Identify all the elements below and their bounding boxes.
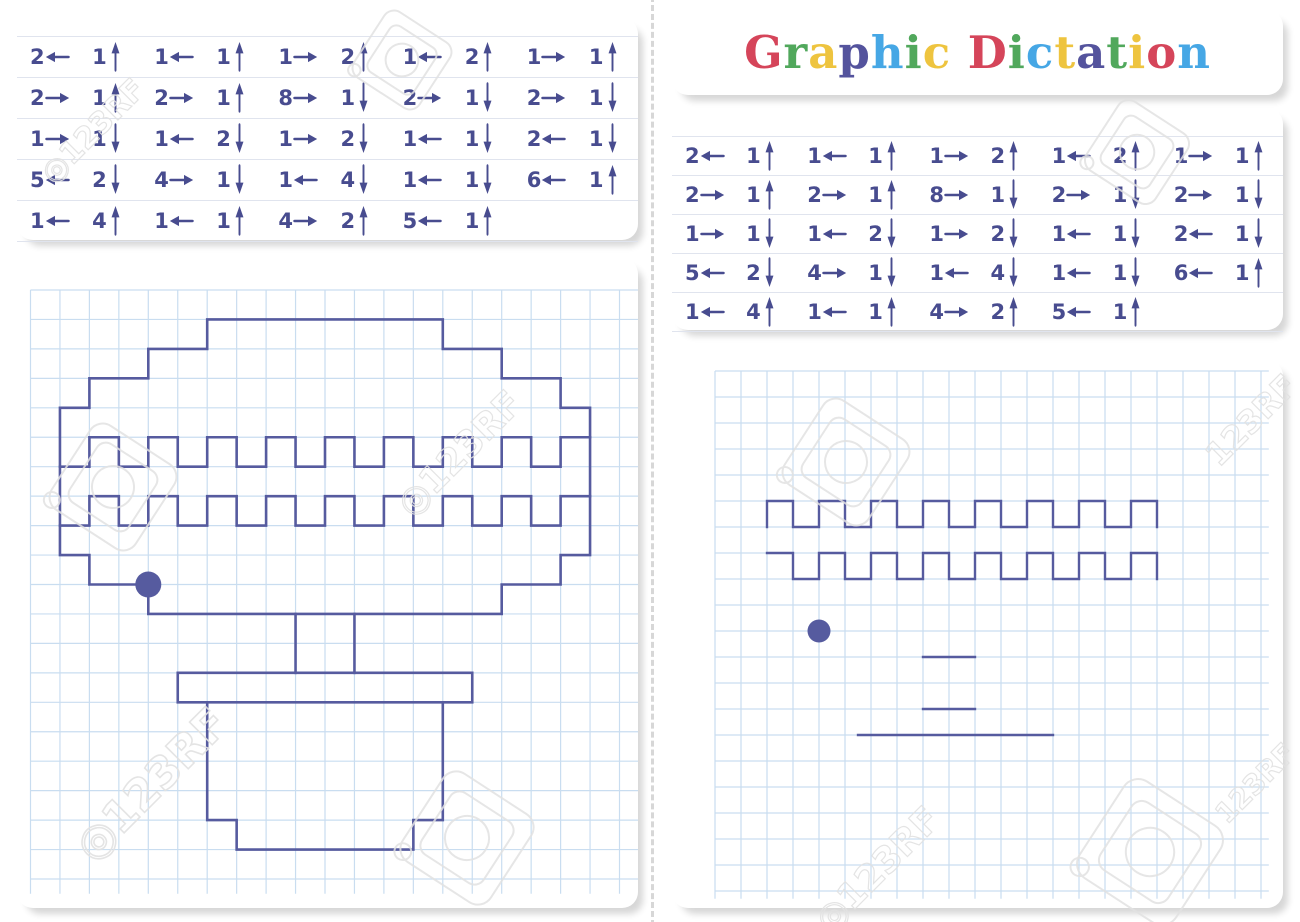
step-count: 1	[807, 146, 822, 167]
dictation-step: 1	[17, 124, 79, 154]
instruction-row: 2121812121	[17, 77, 638, 118]
arrow-right-icon	[1188, 145, 1213, 167]
step-count: 1	[929, 224, 944, 245]
title-letter: a	[808, 26, 838, 79]
arrow-left-icon	[45, 169, 70, 191]
dictation-step: 8	[916, 180, 977, 210]
step-count: 1	[278, 170, 293, 191]
arrow-down-icon	[1127, 179, 1144, 210]
dictation-step: 1	[390, 124, 452, 154]
dictation-step: 4	[141, 165, 203, 195]
dictation-step: 1	[203, 165, 265, 195]
start-dot	[808, 620, 831, 643]
step-count: 1	[1052, 146, 1067, 167]
arrow-down-icon	[604, 123, 621, 154]
step-count: 1	[868, 185, 883, 206]
step-count: 1	[1174, 146, 1189, 167]
step-count: 2	[1113, 146, 1128, 167]
step-count: 1	[1113, 302, 1128, 323]
arrow-down-icon	[479, 164, 496, 195]
arrow-down-icon	[479, 123, 496, 154]
dictation-step: 1	[916, 219, 977, 249]
dictation-step: 2	[977, 219, 1038, 249]
step-count: 8	[929, 185, 944, 206]
arrow-right-icon	[45, 128, 70, 150]
step-count: 2	[465, 47, 480, 68]
arrow-left-icon	[700, 301, 725, 323]
arrow-right-icon	[944, 145, 969, 167]
step-count: 2	[216, 129, 231, 150]
arrow-up-icon	[1005, 140, 1022, 171]
arrow-up-icon	[231, 82, 248, 113]
step-count: 1	[465, 211, 480, 232]
arrow-right-icon	[417, 87, 442, 109]
dictation-step: 4	[733, 297, 794, 327]
dictation-step: 1	[1222, 180, 1283, 210]
arrow-left-icon	[417, 210, 442, 232]
step-count: 1	[589, 129, 604, 150]
arrow-down-icon	[231, 123, 248, 154]
arrow-up-icon	[883, 179, 900, 210]
arrow-left-icon	[169, 210, 194, 232]
dictation-step: 2	[672, 180, 733, 210]
arrow-right-icon	[293, 128, 318, 150]
arrow-down-icon	[1127, 218, 1144, 249]
step-count: 6	[1174, 263, 1189, 284]
step-count: 1	[1052, 224, 1067, 245]
dictation-step: 2	[141, 83, 203, 113]
arrow-right-icon	[541, 87, 566, 109]
dictation-step: 1	[794, 141, 855, 171]
arrow-up-icon	[1127, 296, 1144, 327]
arrow-right-icon	[700, 223, 725, 245]
dictation-step: 2	[672, 141, 733, 171]
title-letter: t	[1054, 26, 1076, 79]
arrow-right-icon	[944, 301, 969, 323]
step-count: 1	[403, 129, 418, 150]
dictation-step: 2	[1039, 180, 1100, 210]
step-count: 1	[154, 129, 169, 150]
arrow-down-icon	[355, 123, 372, 154]
dictation-step: 2	[794, 180, 855, 210]
step-count: 2	[807, 185, 822, 206]
step-count: 1	[1113, 224, 1128, 245]
dictation-step: 2	[452, 42, 514, 72]
dictation-step: 1	[390, 42, 452, 72]
arrow-up-icon	[883, 296, 900, 327]
dictation-step: 1	[265, 124, 327, 154]
dictation-step: 1	[855, 297, 916, 327]
dictation-step: 1	[733, 141, 794, 171]
step-count: 1	[589, 88, 604, 109]
dictation-step: 1	[1039, 141, 1100, 171]
arrow-left-icon	[1066, 262, 1091, 284]
dictation-step: 1	[514, 42, 576, 72]
dictation-step: 2	[327, 42, 389, 72]
arrow-down-icon	[355, 82, 372, 113]
step-count: 1	[154, 47, 169, 68]
step-count: 1	[278, 47, 293, 68]
arrow-left-icon	[169, 128, 194, 150]
title-letter: G	[744, 26, 783, 79]
arrow-down-icon	[355, 164, 372, 195]
arrow-left-icon	[169, 46, 194, 68]
arrow-down-icon	[107, 123, 124, 154]
arrow-up-icon	[1250, 140, 1267, 171]
instruction-row: 1112121121	[17, 118, 638, 159]
dictation-step: 1	[1222, 258, 1283, 288]
worksheet-page: 2111121211212181212111121211215241141161…	[0, 0, 1300, 922]
instruction-row: 14114251	[672, 292, 1283, 332]
step-count: 5	[685, 263, 700, 284]
arrow-down-icon	[1127, 257, 1144, 288]
dictation-step: 1	[855, 180, 916, 210]
title-letter: t	[1106, 26, 1128, 79]
arrow-up-icon	[107, 41, 124, 72]
arrow-up-icon	[479, 205, 496, 236]
arrow-left-icon	[1066, 145, 1091, 167]
step-count: 1	[589, 47, 604, 68]
dictation-step: 1	[576, 83, 638, 113]
title-letter: p	[838, 26, 870, 79]
arrow-up-icon	[604, 41, 621, 72]
step-count: 2	[527, 129, 542, 150]
arrow-left-icon	[45, 46, 70, 68]
step-count: 2	[685, 146, 700, 167]
arrow-up-icon	[107, 82, 124, 113]
title-letter: c	[923, 26, 951, 79]
step-count: 4	[278, 211, 293, 232]
step-count: 1	[1235, 146, 1250, 167]
dictation-step: 1	[916, 141, 977, 171]
dictation-step: 2	[1161, 180, 1222, 210]
dictation-step: 1	[203, 83, 265, 113]
arrow-up-icon	[761, 179, 778, 210]
step-count: 4	[340, 170, 355, 191]
arrow-down-icon	[1005, 218, 1022, 249]
step-count: 1	[1235, 224, 1250, 245]
arrow-right-icon	[822, 262, 847, 284]
instruction-card-right: 2111121211212181212111121211215241141161…	[672, 108, 1283, 330]
graph-paper-grid	[31, 290, 639, 894]
arrow-down-icon	[761, 218, 778, 249]
step-count: 1	[807, 302, 822, 323]
step-count: 1	[929, 146, 944, 167]
dictation-step: 4	[327, 165, 389, 195]
arrow-right-icon	[1066, 184, 1091, 206]
arrow-left-icon	[541, 128, 566, 150]
title-letter: n	[1177, 26, 1211, 79]
arrow-up-icon	[1005, 296, 1022, 327]
step-count: 1	[216, 170, 231, 191]
step-count: 1	[30, 211, 45, 232]
step-count: 2	[340, 129, 355, 150]
step-count: 1	[1235, 185, 1250, 206]
arrow-up-icon	[1127, 140, 1144, 171]
step-count: 2	[30, 88, 45, 109]
arrow-left-icon	[417, 169, 442, 191]
step-count: 2	[154, 88, 169, 109]
instruction-row: 2121812121	[672, 175, 1283, 214]
title-letter: a	[1076, 26, 1106, 79]
dictation-step: 2	[855, 219, 916, 249]
step-count: 8	[278, 88, 293, 109]
dictation-step: 4	[265, 206, 327, 236]
dictation-step: 6	[514, 165, 576, 195]
title-letter: r	[784, 26, 809, 79]
dictation-step: 1	[1100, 258, 1161, 288]
arrow-up-icon	[231, 41, 248, 72]
step-count: 1	[685, 224, 700, 245]
arrow-down-icon	[883, 218, 900, 249]
title-letter: D	[968, 26, 1008, 79]
step-count: 1	[92, 47, 107, 68]
step-count: 1	[990, 185, 1005, 206]
step-count: 1	[929, 263, 944, 284]
instruction-row: 1112121121	[672, 214, 1283, 253]
arrow-up-icon	[1250, 257, 1267, 288]
arrow-left-icon	[1188, 262, 1213, 284]
arrow-down-icon	[604, 82, 621, 113]
step-count: 5	[403, 211, 418, 232]
step-count: 1	[868, 302, 883, 323]
arrow-up-icon	[355, 205, 372, 236]
dictation-step: 1	[452, 83, 514, 113]
dictation-step: 2	[733, 258, 794, 288]
dictation-step: 1	[327, 83, 389, 113]
arrow-left-icon	[417, 46, 442, 68]
arrow-down-icon	[761, 257, 778, 288]
instruction-rows-left: 2111121211212181212111121211215241141161…	[17, 36, 638, 242]
dictation-step: 1	[1100, 297, 1161, 327]
arrow-up-icon	[761, 296, 778, 327]
dictation-step: 1	[855, 258, 916, 288]
dictation-step: 1	[1039, 219, 1100, 249]
arrow-left-icon	[45, 210, 70, 232]
arrow-down-icon	[231, 164, 248, 195]
step-count: 1	[465, 88, 480, 109]
dictation-step: 1	[1222, 141, 1283, 171]
start-dot	[135, 572, 161, 598]
arrow-left-icon	[822, 223, 847, 245]
dictation-step: 1	[452, 124, 514, 154]
step-count: 1	[1235, 263, 1250, 284]
title-letter: h	[871, 26, 905, 79]
dictation-step: 4	[916, 297, 977, 327]
step-count: 1	[154, 211, 169, 232]
arrow-right-icon	[541, 46, 566, 68]
dictation-step: 4	[79, 206, 141, 236]
arrow-right-icon	[293, 87, 318, 109]
arrow-up-icon	[107, 205, 124, 236]
step-count: 2	[30, 47, 45, 68]
dictation-step: 2	[977, 141, 1038, 171]
step-count: 1	[1052, 263, 1067, 284]
dictation-step: 1	[141, 42, 203, 72]
dictation-step: 1	[855, 141, 916, 171]
dictation-step: 1	[794, 219, 855, 249]
step-count: 2	[1174, 185, 1189, 206]
arrow-right-icon	[293, 46, 318, 68]
dictation-step: 1	[1100, 180, 1161, 210]
dictation-step: 2	[514, 124, 576, 154]
dictation-step: 1	[576, 165, 638, 195]
step-count: 1	[465, 129, 480, 150]
arrow-right-icon	[169, 87, 194, 109]
dictation-step: 1	[1222, 219, 1283, 249]
arrow-left-icon	[1066, 223, 1091, 245]
graph-paper-grid	[715, 371, 1269, 899]
dictation-step: 1	[79, 83, 141, 113]
dictation-step: 2	[17, 83, 79, 113]
step-count: 1	[746, 224, 761, 245]
step-count: 1	[340, 88, 355, 109]
arrow-right-icon	[944, 184, 969, 206]
arrow-right-icon	[169, 169, 194, 191]
step-count: 1	[403, 47, 418, 68]
step-count: 1	[92, 88, 107, 109]
step-count: 1	[589, 170, 604, 191]
arrow-left-icon	[700, 262, 725, 284]
arrow-down-icon	[479, 82, 496, 113]
step-count: 1	[216, 47, 231, 68]
step-count: 1	[278, 129, 293, 150]
step-count: 4	[929, 302, 944, 323]
step-count: 1	[685, 302, 700, 323]
arrow-right-icon	[822, 184, 847, 206]
arrow-up-icon	[231, 205, 248, 236]
step-count: 4	[746, 302, 761, 323]
arrow-down-icon	[1005, 179, 1022, 210]
dictation-step: 1	[1161, 141, 1222, 171]
arrow-down-icon	[1250, 179, 1267, 210]
step-count: 2	[1174, 224, 1189, 245]
step-count: 6	[527, 170, 542, 191]
dictation-step: 1	[1100, 219, 1161, 249]
dictation-step: 2	[17, 42, 79, 72]
arrow-left-icon	[822, 301, 847, 323]
dictation-step: 1	[203, 42, 265, 72]
step-count: 2	[527, 88, 542, 109]
dictation-step: 1	[1039, 258, 1100, 288]
dictation-step: 1	[916, 258, 977, 288]
zigzag-band-upper	[767, 501, 1157, 527]
dictation-step: 1	[141, 124, 203, 154]
instruction-card-left: 2111121211212181212111121211215241141161…	[17, 18, 638, 240]
grid-card-left	[17, 258, 638, 908]
arrow-left-icon	[944, 262, 969, 284]
instruction-row: 2111121211	[17, 36, 638, 77]
arrow-left-icon	[1066, 301, 1091, 323]
arrow-right-icon	[944, 223, 969, 245]
dictation-step: 1	[265, 42, 327, 72]
instruction-row: 5241141161	[17, 159, 638, 200]
step-count: 1	[403, 170, 418, 191]
step-count: 1	[465, 170, 480, 191]
grid-card-right	[672, 360, 1283, 908]
step-count: 2	[340, 211, 355, 232]
title-card: Graphic Dictation	[672, 10, 1283, 95]
dictation-step: 1	[672, 297, 733, 327]
step-count: 1	[1113, 263, 1128, 284]
arrow-up-icon	[355, 41, 372, 72]
step-count: 1	[807, 224, 822, 245]
dictation-step: 1	[576, 124, 638, 154]
arrow-right-icon	[1188, 184, 1213, 206]
step-count: 2	[990, 224, 1005, 245]
dictation-step: 1	[79, 124, 141, 154]
step-count: 1	[216, 88, 231, 109]
arrow-left-icon	[700, 145, 725, 167]
dictation-step: 1	[203, 206, 265, 236]
dictation-step: 2	[1100, 141, 1161, 171]
dictation-step: 1	[17, 206, 79, 236]
zigzag-band-upper	[60, 437, 590, 466]
arrow-right-icon	[45, 87, 70, 109]
zigzag-band-lower	[767, 553, 1157, 579]
title-letter	[951, 26, 968, 79]
dictation-step: 1	[977, 180, 1038, 210]
arrow-left-icon	[417, 128, 442, 150]
step-count: 1	[746, 185, 761, 206]
step-count: 1	[92, 129, 107, 150]
step-count: 1	[30, 129, 45, 150]
step-count: 2	[868, 224, 883, 245]
title-letter: o	[1146, 26, 1177, 79]
step-count: 4	[807, 263, 822, 284]
dictation-step: 1	[733, 219, 794, 249]
title-letter: i	[1008, 26, 1026, 79]
dictation-step: 2	[327, 124, 389, 154]
dictation-step: 1	[265, 165, 327, 195]
dictation-step: 2	[203, 124, 265, 154]
page-title: Graphic Dictation	[672, 10, 1283, 95]
instruction-rows-right: 2111121211212181212111121211215241141161…	[672, 136, 1283, 332]
step-count: 2	[340, 47, 355, 68]
arrow-left-icon	[1188, 223, 1213, 245]
title-letter: i	[905, 26, 923, 79]
dictation-step: 2	[390, 83, 452, 113]
step-count: 2	[403, 88, 418, 109]
step-count: 5	[1052, 302, 1067, 323]
step-count: 2	[746, 263, 761, 284]
step-count: 2	[990, 146, 1005, 167]
arrow-down-icon	[883, 257, 900, 288]
cut-line-divider	[651, 0, 654, 922]
step-count: 1	[216, 211, 231, 232]
dictation-step: 5	[17, 165, 79, 195]
step-count: 2	[685, 185, 700, 206]
step-count: 4	[92, 211, 107, 232]
step-count: 4	[990, 263, 1005, 284]
arrow-right-icon	[700, 184, 725, 206]
arrow-up-icon	[479, 41, 496, 72]
dictation-step: 5	[390, 206, 452, 236]
step-count: 5	[30, 170, 45, 191]
dictation-grid-right	[672, 360, 1283, 908]
dictation-step: 1	[390, 165, 452, 195]
dictation-step: 2	[977, 297, 1038, 327]
instruction-row: 14114251	[17, 200, 638, 242]
instruction-row: 5241141161	[672, 253, 1283, 292]
dictation-step: 4	[977, 258, 1038, 288]
dictation-step: 1	[794, 297, 855, 327]
arrow-down-icon	[1250, 218, 1267, 249]
dictation-grid-left	[17, 258, 638, 908]
title-letter: c	[1026, 26, 1054, 79]
dictation-step: 1	[452, 206, 514, 236]
step-count: 1	[527, 47, 542, 68]
